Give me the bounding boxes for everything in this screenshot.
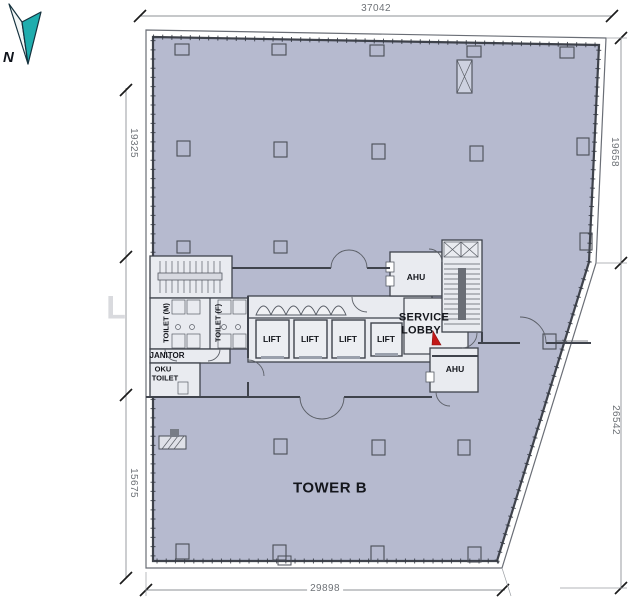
oku-toilet-label-line2: TOILET [152, 374, 179, 382]
dimension-label-top: 37042 [361, 4, 391, 14]
lift-door-sill [299, 356, 322, 359]
floor-equipment [159, 436, 186, 449]
floor-equipment-knob [170, 429, 179, 437]
stair-west-landing [158, 273, 222, 280]
tower-label: TOWER B [293, 481, 367, 496]
stair-west [150, 256, 232, 298]
oku-toilet-label-line1: OKU [155, 365, 172, 373]
lift-door-sill [261, 356, 284, 359]
dimension-label-left-upper: 19325 [128, 128, 138, 158]
dimension-label-left-lower: 15675 [128, 468, 138, 498]
ahu-upper-louver [386, 276, 394, 286]
toilet-male-label: TOILET (M) [162, 303, 170, 343]
floor-plan-drawing [0, 0, 630, 600]
service-lobby-label-line2: LOBBY [401, 326, 441, 337]
ahu-upper-label: AHU [407, 273, 425, 282]
lift-3-label: LIFT [339, 335, 357, 344]
lift-2-label: LIFT [301, 335, 319, 344]
north-arrow-east-blade [22, 12, 41, 64]
stair-east-rail [458, 268, 466, 320]
lift-1-label: LIFT [263, 335, 281, 344]
dimension-label-right-upper: 19658 [609, 137, 619, 167]
toilet-female-label: TOILET (F) [214, 304, 222, 342]
north-label: N [3, 49, 14, 66]
lift-door-sill [337, 356, 360, 359]
watermark-letter: L [106, 290, 126, 327]
service-lobby-label-line1: SERVICE [399, 313, 449, 324]
lift-4-label: LIFT [377, 335, 395, 344]
lift-door-sill [375, 353, 398, 356]
ahu-lower-louver [426, 372, 434, 382]
dimension-label-bottom: 29898 [307, 584, 343, 594]
ahu-lower-label: AHU [446, 365, 464, 374]
janitor-label: JANITOR [150, 352, 185, 360]
floor-plan-canvas: N L 37042 19325 15675 19658 26542 29898 … [0, 0, 630, 600]
dimension-label-right-lower: 26542 [610, 405, 620, 435]
